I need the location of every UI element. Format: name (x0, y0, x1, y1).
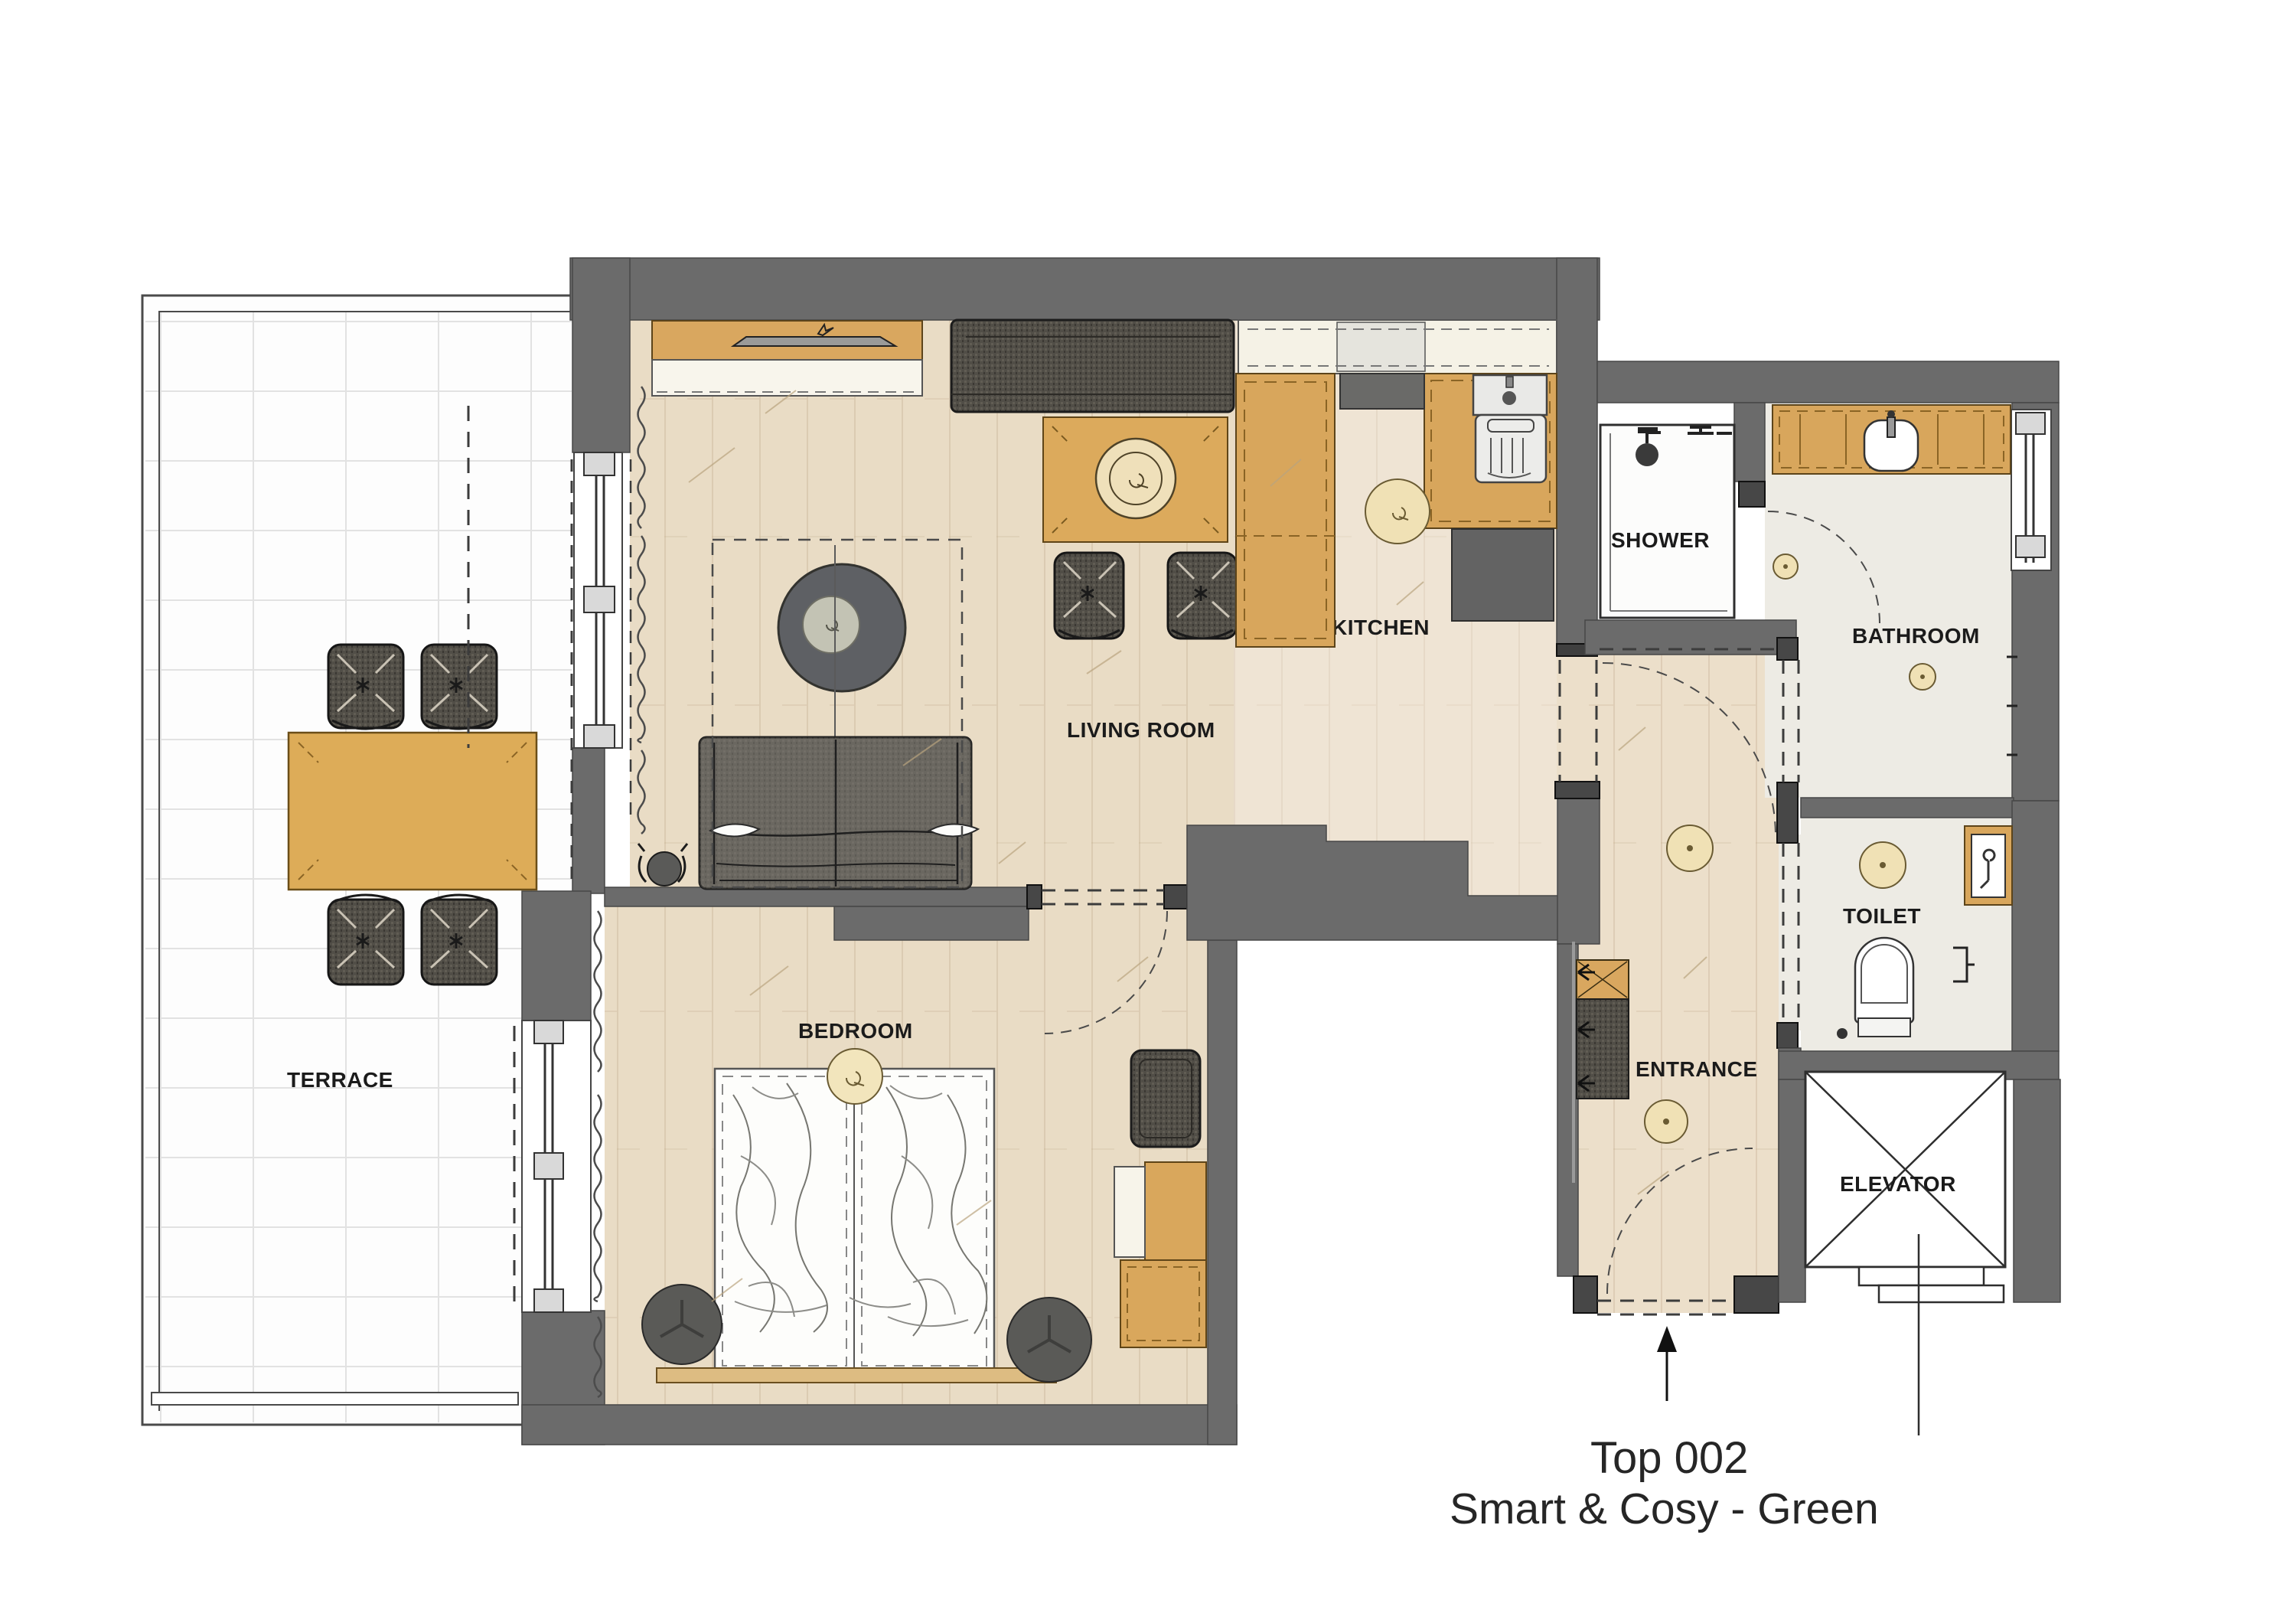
svg-text:TERRACE: TERRACE (287, 1068, 393, 1092)
svg-text:BATHROOM: BATHROOM (1852, 624, 1980, 648)
svg-text:TOILET: TOILET (1843, 904, 1921, 928)
svg-text:KITCHEN: KITCHEN (1332, 616, 1430, 639)
svg-text:SHOWER: SHOWER (1611, 528, 1710, 552)
svg-text:BEDROOM: BEDROOM (798, 1019, 913, 1043)
svg-text:LIVING ROOM: LIVING ROOM (1067, 718, 1215, 742)
svg-text:ENTRANCE: ENTRANCE (1636, 1057, 1758, 1081)
svg-text:Top 002: Top 002 (1590, 1433, 1748, 1483)
svg-text:Smart & Cosy - Green: Smart & Cosy - Green (1450, 1484, 1879, 1533)
svg-text:ELEVATOR: ELEVATOR (1840, 1172, 1956, 1196)
